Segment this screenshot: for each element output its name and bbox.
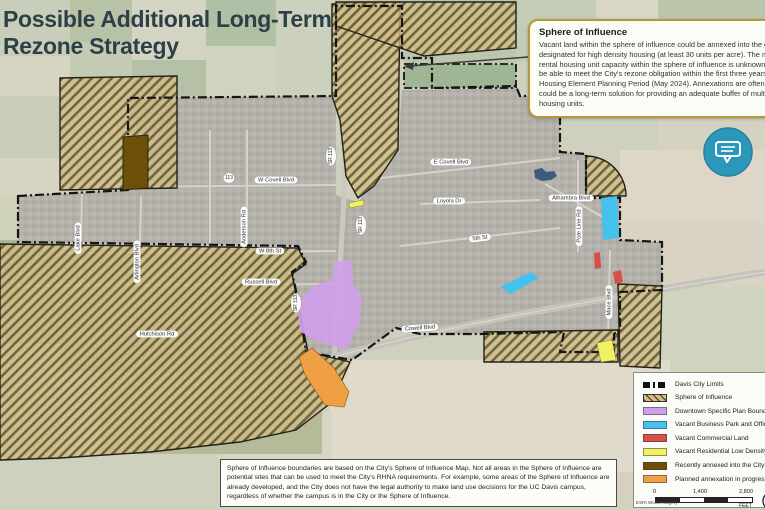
highway-shield-sr113-south: SR 113 <box>291 293 301 312</box>
road-label-russell: Russell Blvd <box>242 279 281 286</box>
road-label-arlington: Arlington Blvd <box>134 241 141 284</box>
scale-unit: FEET <box>739 503 752 509</box>
legend-item-annexation: Planned annexation in progress <box>643 475 765 483</box>
highway-shield-sr113-north: SR 113 <box>326 146 336 165</box>
legend-item-residential: Vacant Residential Low Density Land <box>643 448 765 456</box>
city-limits-symbol <box>643 382 667 388</box>
downtown-swatch <box>643 407 667 415</box>
disclaimer-text: Sphere of Influence boundaries are based… <box>227 465 610 500</box>
sphere-swatch <box>643 394 667 402</box>
legend-item-commercial: Vacant Commercial Land <box>643 434 765 442</box>
scale-tick-end: 2,800 <box>739 489 753 495</box>
commercial-swatch <box>643 434 667 442</box>
comment-icon <box>703 127 753 177</box>
comment-button[interactable] <box>703 127 753 177</box>
legend-item-city-limits: Davis City Limits <box>643 381 765 388</box>
road-label-w-8th: W 8th St <box>255 248 284 255</box>
business-park-polygon-2 <box>601 196 619 240</box>
legend-label: Vacant Commercial Land <box>675 435 749 442</box>
callout-heading: Sphere of Influence <box>539 27 765 38</box>
imagery-credit: ESRI World Imagery <box>636 500 678 505</box>
legend-label: Planned annexation in progress <box>675 476 765 483</box>
legend-label: Sphere of Influence <box>675 394 732 401</box>
road-label-hutchison: Hutchison Rd <box>136 331 178 338</box>
road-label-mace: Mace Blvd <box>606 285 613 319</box>
legend-item-sphere: Sphere of Influence <box>643 394 765 402</box>
page-title: Possible Additional Long-Term Rezone Str… <box>3 6 332 60</box>
residential-swatch <box>643 448 667 456</box>
annexed-swatch <box>643 462 667 470</box>
road-label-lake: Lake Blvd <box>75 222 82 254</box>
road-label-e-covell: E Covell Blvd <box>430 159 471 166</box>
road-label-pole-line: Pole Line Rd <box>576 206 583 246</box>
road-label-loyola: Loyola Dr <box>433 198 465 205</box>
highway-shield-sr113-mid: SR 113 <box>356 215 366 234</box>
disclaimer-note: Sphere of Influence boundaries are based… <box>220 459 617 507</box>
highway-shield-113: 113 <box>224 173 235 183</box>
scale-tick-0: 0 <box>653 489 656 495</box>
recently-annexed-polygon <box>123 135 148 190</box>
callout-body: Vacant land within the sphere of influen… <box>539 40 765 108</box>
road-label-anderson: Anderson Rd <box>241 207 248 248</box>
legend-label: Vacant Business Park and Office Land <box>675 421 765 428</box>
page-title-line1: Possible Additional Long-Term <box>3 6 332 33</box>
legend: Davis City Limits Sphere of Influence Do… <box>633 372 765 508</box>
legend-label: Vacant Residential Low Density Land <box>675 448 765 455</box>
legend-item-annexed: Recently annexed into the City of Davis <box>643 462 765 470</box>
annexation-swatch <box>643 475 667 483</box>
scale-tick-mid: 1,400 <box>693 489 707 495</box>
legend-item-business-park: Vacant Business Park and Office Land <box>643 421 765 429</box>
business-park-swatch <box>643 421 667 429</box>
road-label-alhambra: Alhambra Blvd <box>549 195 594 202</box>
legend-label: Davis City Limits <box>675 381 724 388</box>
sphere-of-influence-callout: Sphere of Influence Vacant land within t… <box>528 19 765 118</box>
road-label-w-covell: W Covell Blvd <box>254 177 297 184</box>
map-export-page: W Covell Blvd E Covell Blvd Loyola Dr Al… <box>0 0 765 510</box>
legend-label: Recently annexed into the City of Davis <box>675 462 765 469</box>
page-title-line2: Rezone Strategy <box>3 33 332 60</box>
legend-label: Downtown Specific Plan Boundary <box>675 408 765 415</box>
legend-item-downtown: Downtown Specific Plan Boundary <box>643 407 765 415</box>
commercial-polygon-2 <box>594 252 601 269</box>
